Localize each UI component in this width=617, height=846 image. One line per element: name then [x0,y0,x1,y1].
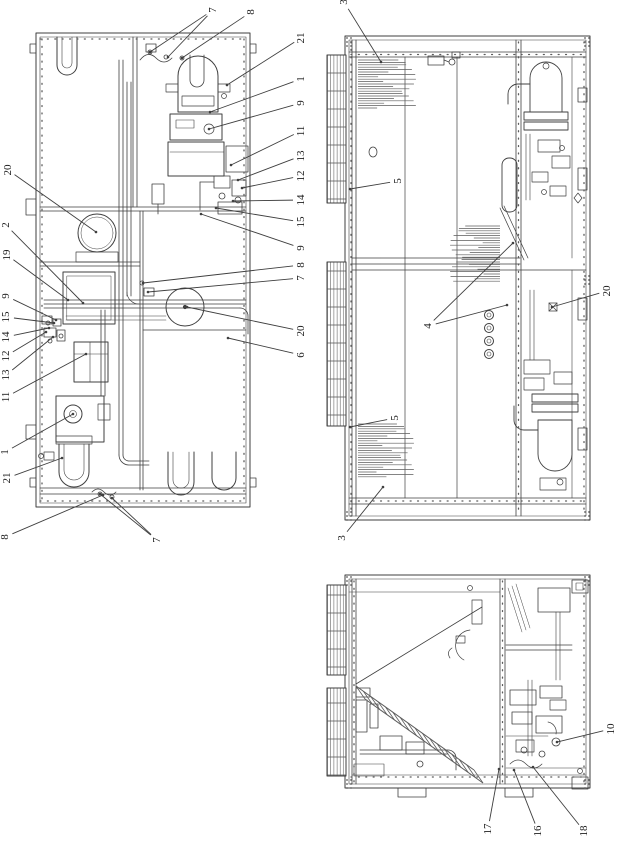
leader-line [557,731,603,742]
callout-label-20: 20 [601,285,613,297]
callout-label-11: 11 [0,392,12,403]
leader-dot [512,242,515,245]
condenser-grille-c-upper [327,585,346,675]
u-pipes-bottom [168,452,236,495]
callout-label-12: 12 [295,171,307,182]
leader-dot [48,327,51,330]
leader-line [238,159,294,180]
valve-train-left [42,316,65,343]
technical-diagram-canvas: 7821191113121415987206202199151412131112… [0,0,617,846]
callout-label-17: 17 [482,823,494,835]
fig-c-inner-frame [349,579,586,784]
leader-line [112,498,151,535]
leader-dot [232,200,235,203]
leader-dot [513,769,516,772]
callout-label-2: 2 [0,222,12,228]
leader-dot [349,426,352,429]
compressor-assembly-top [166,55,248,176]
decorative-detail [40,37,590,789]
leader-dot [551,306,554,309]
callout-label-15: 15 [295,216,307,228]
leader-line [12,414,73,448]
patent-figure-page: 7821191113121415987206202199151412131112… [0,0,617,846]
fig-b-rails [349,40,586,516]
leader-dot [532,766,535,769]
leader-line [15,458,62,475]
door-handle [369,147,377,157]
leader-line [14,318,54,323]
fig-c-rails [349,579,586,784]
u-pipe-top-left [57,37,77,75]
callout-label-21: 21 [1,473,13,484]
leader-dot [95,231,98,234]
callout-label-10: 10 [605,723,617,735]
fan-circle-lower [166,288,204,326]
callout-label-1: 1 [295,76,307,82]
leader-dot [53,322,56,325]
callout-label-1: 1 [0,449,11,455]
leader-line [210,82,293,112]
component-block [74,342,108,382]
base-components [354,688,456,776]
leader-dot [147,291,150,294]
leader-dot [215,207,218,210]
condenser-grille-lower [327,262,346,426]
panel-latches [578,88,587,450]
leader-dot [52,336,55,339]
fig-a-partitions [40,37,246,494]
leader-dot [556,741,559,744]
slanted-coil-assembly [356,586,482,685]
leader-line [227,42,294,85]
callout-label-8: 8 [0,534,11,540]
callout-label-14: 14 [0,331,12,343]
callout-label-13: 13 [295,150,307,162]
callout-label-3: 3 [338,0,350,5]
leader-line [231,134,294,165]
fig-c-right-compartment [506,580,588,789]
fig-b-outer-frame [345,36,590,520]
callout-label-5: 5 [389,415,401,421]
leader-dot [506,304,509,307]
callout-label-9: 9 [0,293,12,299]
compressor-assembly-bottom [39,396,111,487]
callout-label-16: 16 [532,825,544,837]
leader-line [148,279,293,292]
leader-line [533,767,579,825]
fig-b-inner-frame [349,40,586,516]
callout-label-9: 9 [295,245,307,251]
leader-dot [142,282,145,285]
leader-dot [237,179,240,182]
leader-dot [498,768,501,771]
leader-line [12,337,53,370]
callout-label-20: 20 [2,164,14,176]
valve-cluster-right [152,176,246,214]
leader-dot [85,353,88,356]
leader-dot [82,302,85,305]
leader-dot [111,497,114,500]
callout-label-12: 12 [0,351,12,362]
leader-line [187,307,293,329]
leader-dot [99,493,102,496]
callout-label-8: 8 [245,9,257,15]
leader-dot [45,331,48,334]
callout-label-7: 7 [151,537,163,543]
leader-line [13,299,56,320]
leader-line [347,487,383,532]
leader-line [100,494,151,535]
leader-dot [72,413,75,416]
callout-label-20: 20 [295,325,307,337]
callout-label-11: 11 [295,126,307,137]
figure-internal-plan-view [26,33,256,507]
leader-dot [227,337,230,340]
callout-label-9: 9 [295,100,307,106]
compressor-lower-right [514,290,578,490]
leader-dot [186,306,189,309]
leader-dot [208,128,211,131]
leader-dot [61,457,64,460]
leader-line [233,200,293,201]
compressor-upper-right [500,62,582,260]
callout-label-6: 6 [295,352,307,358]
condenser-grille-c-lower [327,688,346,776]
callout-label-3: 3 [336,535,348,541]
fan-circle-upper [76,214,118,262]
callout-label-18: 18 [578,825,590,837]
leader-dot [380,61,383,64]
leader-line [228,338,293,353]
leader-line [12,495,103,534]
callout-label-15: 15 [0,311,12,323]
leader-dot [167,56,170,59]
leader-dot [349,188,352,191]
callout-label-4: 4 [422,323,434,329]
leader-dot [67,299,70,302]
leader-line [489,769,499,821]
callout-label-13: 13 [0,369,12,381]
gauge-cluster [485,311,494,359]
leader-dot [230,164,233,167]
leader-dot [382,486,385,489]
fig-c-outer-frame [345,575,590,788]
refrigerant-piping [44,60,248,465]
callout-label-7: 7 [295,275,307,281]
unit-feet [398,788,533,797]
figure-side-elevation-view [327,36,590,520]
leader-line [350,420,387,427]
callout-label-5: 5 [392,178,404,184]
leader-dot [200,213,203,216]
callout-label-19: 19 [1,249,13,261]
leader-line [552,293,599,307]
condenser-grille-upper [327,55,346,203]
callout-label-8: 8 [295,262,307,268]
leader-dot [181,57,184,60]
leader-dot [55,319,58,322]
leader-line [15,175,96,232]
leader-dot [241,187,244,190]
callout-label-21: 21 [295,33,307,44]
leader-dot [149,51,152,54]
leader-line [348,9,381,62]
callout-label-7: 7 [207,7,219,13]
callout-label-14: 14 [295,194,307,206]
leader-dot [226,84,229,87]
leader-dot [209,111,212,114]
